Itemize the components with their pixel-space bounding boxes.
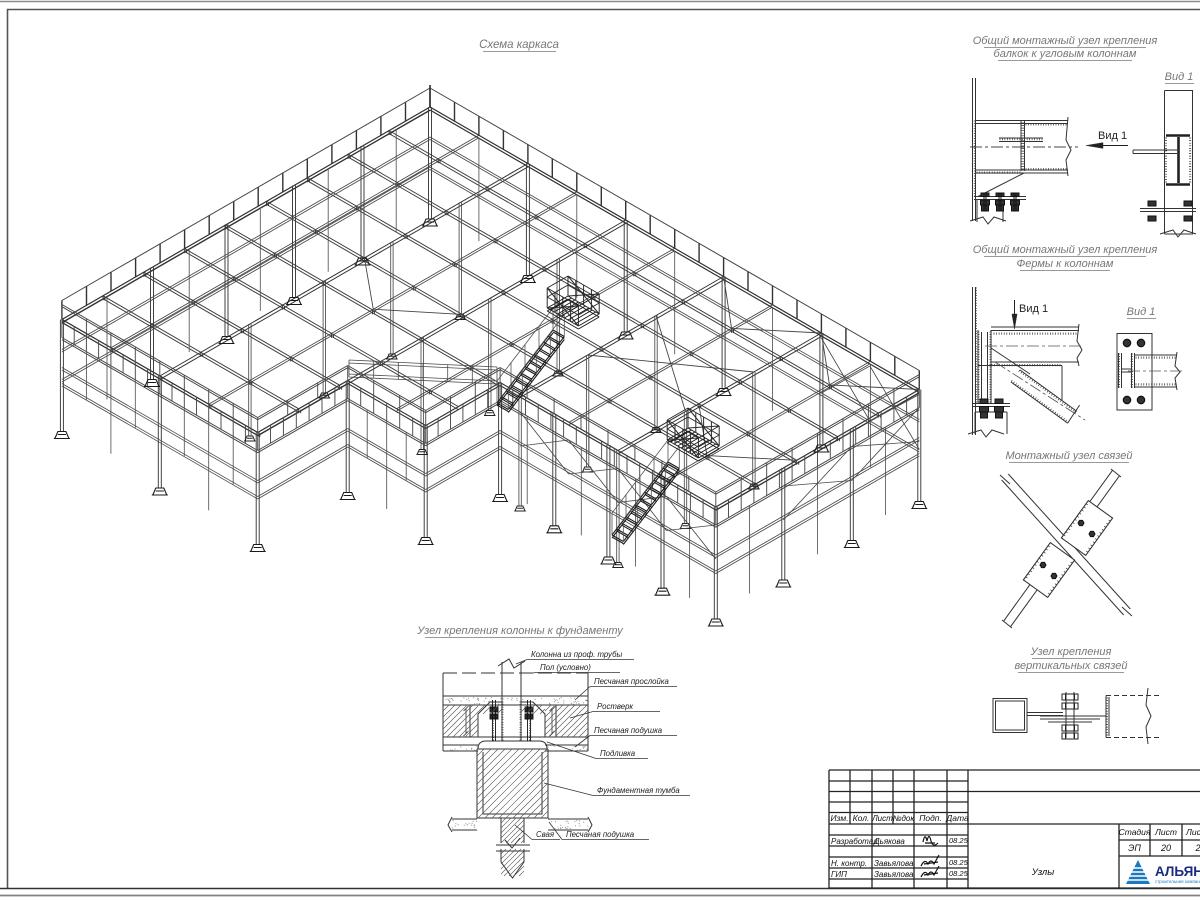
svg-text:Завьялова: Завьялова	[874, 870, 914, 879]
svg-text:08.25: 08.25	[949, 836, 969, 845]
svg-text:строительная компания: строительная компания	[1155, 879, 1200, 884]
svg-text:20: 20	[1160, 843, 1171, 853]
svg-text:вертикальных связей: вертикальных связей	[1015, 660, 1128, 672]
svg-text:08.25: 08.25	[949, 858, 969, 867]
svg-text:Разработал: Разработал	[831, 837, 878, 846]
svg-text:Узел крепления: Узел крепления	[1030, 646, 1112, 658]
svg-text:Пол (условно): Пол (условно)	[540, 663, 591, 672]
svg-text:балкок к угловым колоннам: балкок к угловым колоннам	[994, 48, 1137, 60]
svg-text:Вид 1: Вид 1	[1165, 71, 1194, 83]
svg-text:Фермы к колоннам: Фермы к колоннам	[1017, 258, 1114, 270]
svg-text:Общий монтажный узел крепления: Общий монтажный узел крепления	[973, 244, 1158, 256]
svg-text:ГИП: ГИП	[831, 870, 847, 879]
svg-text:Лист: Лист	[1154, 827, 1177, 837]
svg-text:Подливка: Подливка	[600, 749, 636, 758]
svg-text:Общий монтажный узел крепления: Общий монтажный узел крепления	[973, 35, 1158, 47]
svg-text:Песчаная подушка: Песчаная подушка	[594, 726, 663, 735]
svg-text:ЭП: ЭП	[1128, 843, 1141, 853]
svg-text:Вид 1: Вид 1	[1127, 306, 1156, 318]
svg-text:Лист: Лист	[1185, 827, 1200, 837]
svg-text:Фундаментная тумба: Фундаментная тумба	[597, 786, 680, 795]
svg-text:Песчаная прослойка: Песчаная прослойка	[594, 677, 669, 686]
svg-text:2: 2	[1194, 843, 1200, 853]
svg-text:Изм.: Изм.	[830, 813, 848, 823]
svg-text:Ростверк: Ростверк	[597, 702, 633, 711]
svg-text:Кол.: Кол.	[853, 813, 870, 823]
svg-text:08.25: 08.25	[949, 869, 969, 878]
svg-text:Монтажный узел связей: Монтажный узел связей	[1006, 450, 1133, 462]
svg-text:Лист: Лист	[871, 814, 893, 823]
svg-text:№док: №док	[893, 814, 916, 823]
svg-text:Вид 1: Вид 1	[1019, 303, 1048, 315]
svg-text:Подп.: Подп.	[919, 813, 942, 823]
svg-text:Песчаная подушка: Песчаная подушка	[566, 830, 635, 839]
svg-text:Вид 1: Вид 1	[1098, 130, 1127, 142]
svg-text:АЛЬЯНС: АЛЬЯНС	[1155, 864, 1200, 879]
svg-text:Свая: Свая	[536, 830, 555, 839]
svg-text:Дата: Дата	[945, 813, 969, 823]
svg-text:Дьякова: Дьякова	[873, 837, 905, 846]
svg-text:Узел крепления колонны к фунда: Узел крепления колонны к фундаменту	[416, 625, 624, 637]
svg-text:Узлы: Узлы	[1031, 867, 1055, 878]
svg-text:Схема каркаса: Схема каркаса	[479, 39, 559, 51]
svg-text:Н. контр.: Н. контр.	[831, 859, 867, 868]
svg-text:Стадия: Стадия	[1119, 827, 1151, 837]
svg-text:Завьялова: Завьялова	[874, 859, 914, 868]
svg-text:Колонна из проф. трубы: Колонна из проф. трубы	[531, 650, 622, 659]
